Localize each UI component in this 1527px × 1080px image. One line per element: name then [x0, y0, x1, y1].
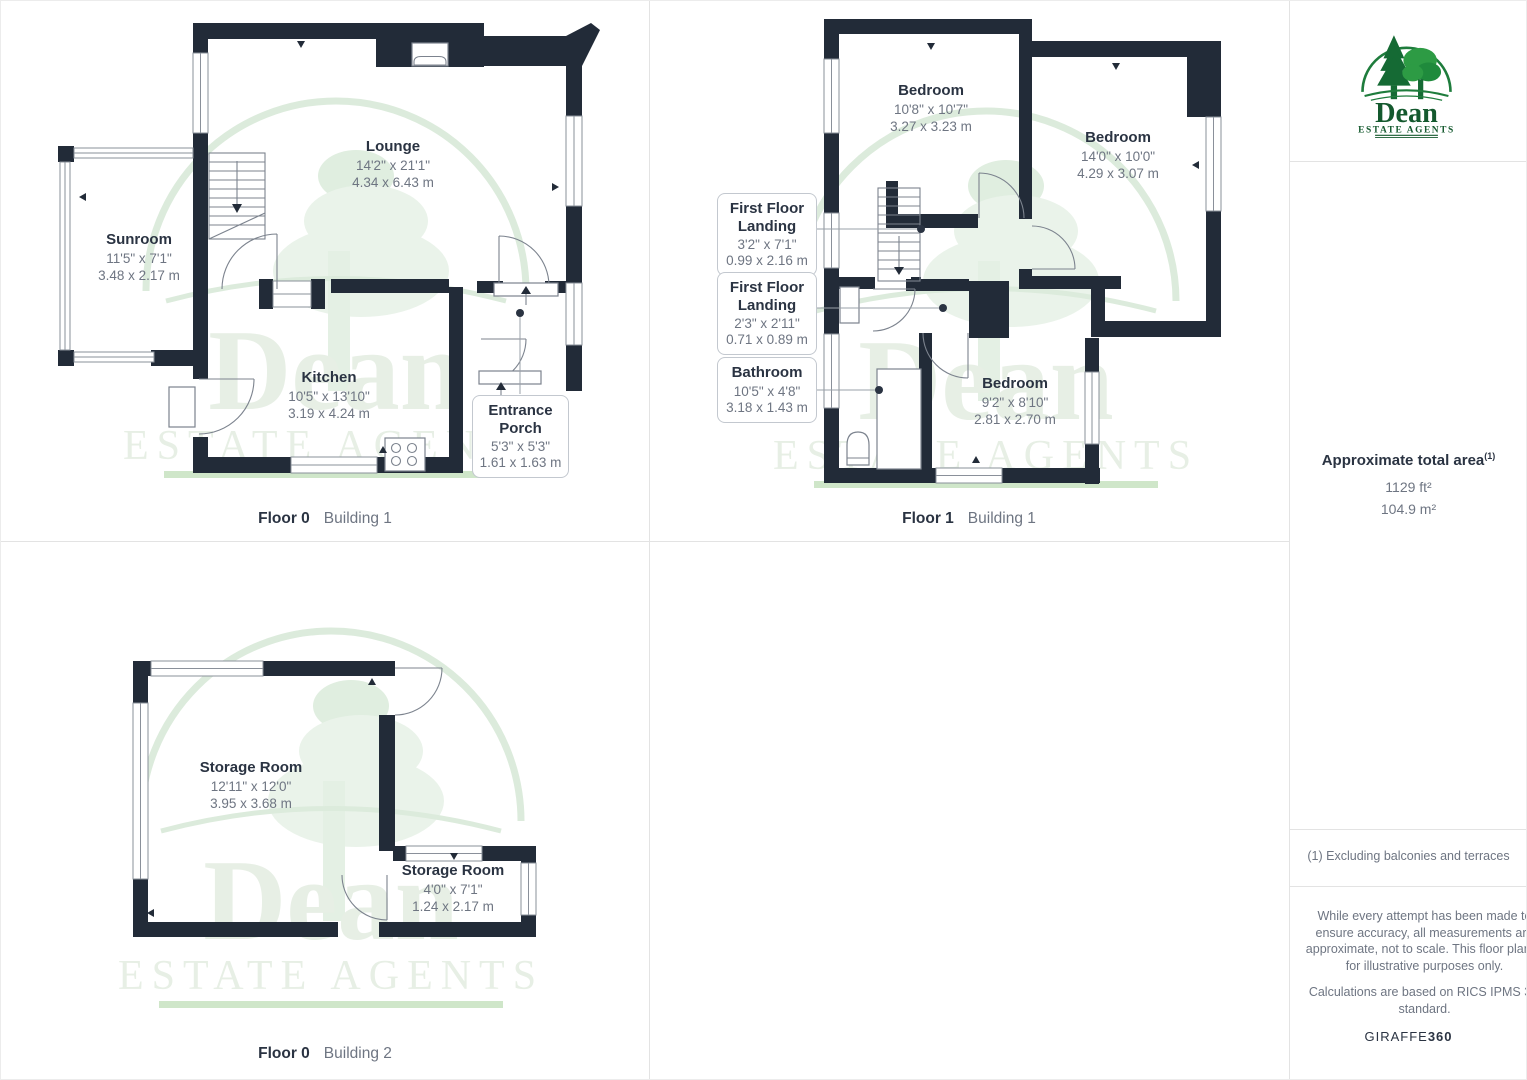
total-area-imperial: 1129 ft² [1289, 479, 1527, 495]
callout-dot [917, 225, 925, 233]
cupboard-icon [840, 287, 859, 323]
caption-floor0-building2: Floor 0 Building 2 [1, 1045, 649, 1063]
total-area-title: Approximate total area(1) [1289, 451, 1527, 469]
standard-text: Calculations are based on RICS IPMS 3C s… [1289, 984, 1527, 1017]
stove-icon [385, 438, 425, 471]
room-label-sunroom: Sunroom 11'5" x 7'1" 3.48 x 2.17 m [98, 231, 180, 284]
room-label-lounge: Lounge 14'2" x 21'1" 4.34 x 6.43 m [352, 138, 434, 191]
caption-floor0-building1: Floor 0 Building 1 [1, 510, 649, 528]
staircase-icon [209, 153, 265, 239]
floorplan-page: Dean ESTATE AGENTS Dean ESTATE AGENTS De… [0, 0, 1527, 1080]
callout-entrance-porch: Entrance Porch 5'3" x 5'3" 1.61 x 1.63 m [472, 395, 569, 478]
callout-bathroom: Bathroom 10'5" x 4'8" 3.18 x 1.43 m [717, 357, 817, 423]
footnote-marker: (1) [1484, 451, 1495, 461]
fireplace-icon [412, 43, 448, 66]
step-icon [169, 387, 195, 427]
callout-dot [875, 386, 883, 394]
disclaimer-text: While every attempt has been made to ens… [1289, 908, 1527, 974]
dean-estate-agents-logo: Dean ESTATE AGENTS [1354, 29, 1459, 139]
room-label-storage-room-2: Storage Room 4'0" x 7'1" 1.24 x 2.17 m [402, 862, 505, 915]
giraffe360-brand-mark: GIRAFFE360 [1289, 1029, 1527, 1044]
room-label-kitchen: Kitchen 10'5" x 13'10" 3.19 x 4.24 m [288, 369, 370, 422]
svg-text:ESTATE AGENTS: ESTATE AGENTS [1358, 126, 1455, 136]
callout-dot [516, 309, 524, 317]
room-label-bedroom-1: Bedroom 10'8" x 10'7" 3.27 x 3.23 m [890, 82, 972, 135]
caption-floor1-building1: Floor 1 Building 1 [649, 510, 1289, 528]
door-arc-icon [873, 173, 1075, 378]
toilet-icon [847, 432, 869, 465]
room-label-bedroom-2: Bedroom 14'0" x 10'0" 4.29 x 3.07 m [1077, 129, 1159, 182]
room-label-bedroom-3: Bedroom 9'2" x 8'10" 2.81 x 2.70 m [974, 375, 1056, 428]
callout-first-floor-landing-1: First Floor Landing 3'2" x 7'1" 0.99 x 2… [717, 193, 817, 276]
callout-dot [939, 304, 947, 312]
svg-text:Dean: Dean [1375, 98, 1438, 129]
shower-icon [877, 369, 921, 469]
callout-first-floor-landing-2: First Floor Landing 2'3" x 2'11" 0.71 x … [717, 272, 817, 355]
total-area-metric: 104.9 m² [1289, 501, 1527, 517]
footnote-text: (1) Excluding balconies and terraces [1289, 849, 1527, 863]
door-sill-icon [479, 371, 541, 384]
room-label-storage-room-1: Storage Room 12'11" x 12'0" 3.95 x 3.68 … [200, 759, 303, 812]
